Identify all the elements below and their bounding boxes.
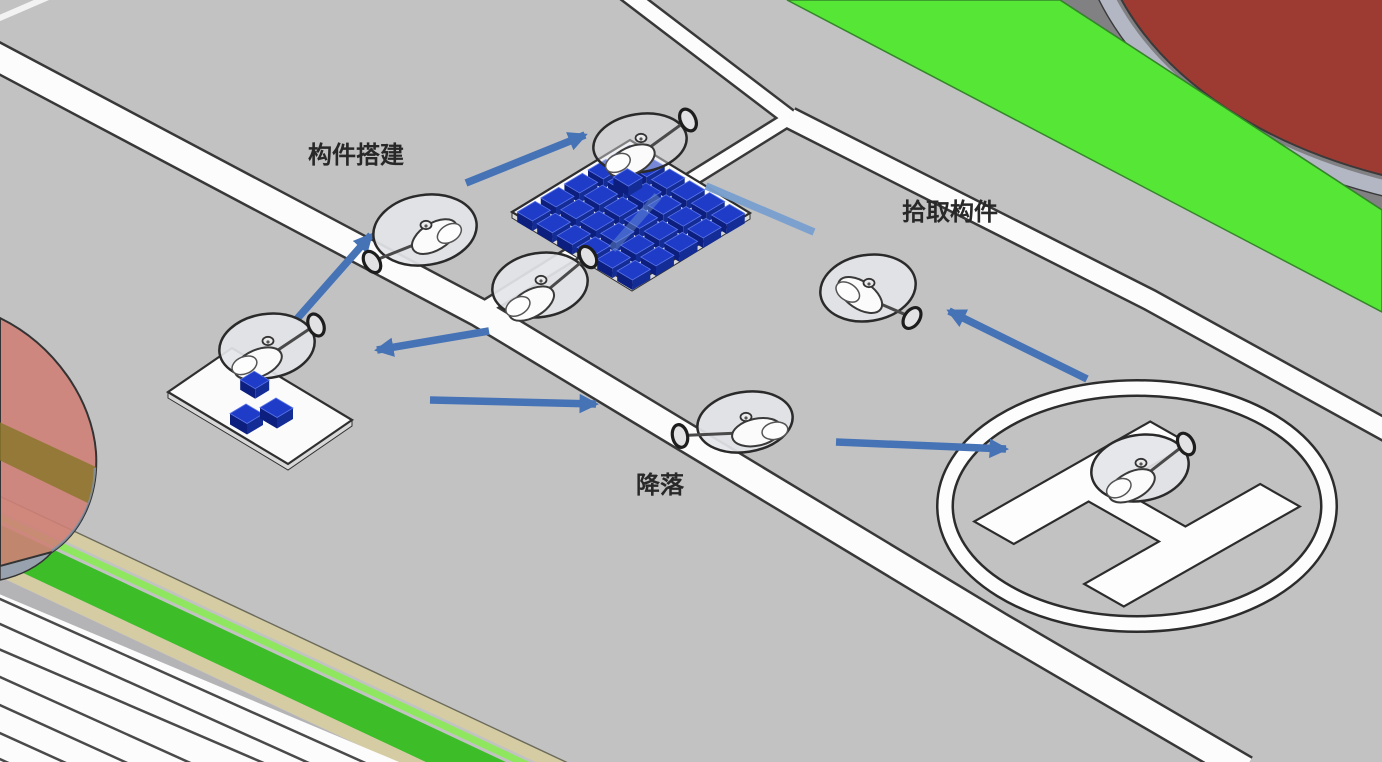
label-build-step: 构件搭建: [308, 141, 404, 169]
rotor-hub-dot: [266, 340, 269, 343]
rotor-hub-dot: [424, 224, 427, 227]
rotor-hub-dot: [744, 416, 747, 419]
arrow-taxi-road: [430, 400, 596, 404]
rotor-hub-dot: [867, 282, 870, 285]
rotor-hub-dot: [639, 137, 642, 140]
rotor-hub-dot: [1139, 462, 1142, 465]
rotor-hub-dot: [539, 279, 542, 282]
label-landing-step: 降落: [636, 471, 685, 499]
simulation-scene: 构件搭建 拾取构件 降落: [0, 0, 1382, 762]
label-pickup-step: 拾取构件: [902, 198, 998, 226]
scene-illustration: 构件搭建 拾取构件 降落: [0, 0, 1382, 762]
